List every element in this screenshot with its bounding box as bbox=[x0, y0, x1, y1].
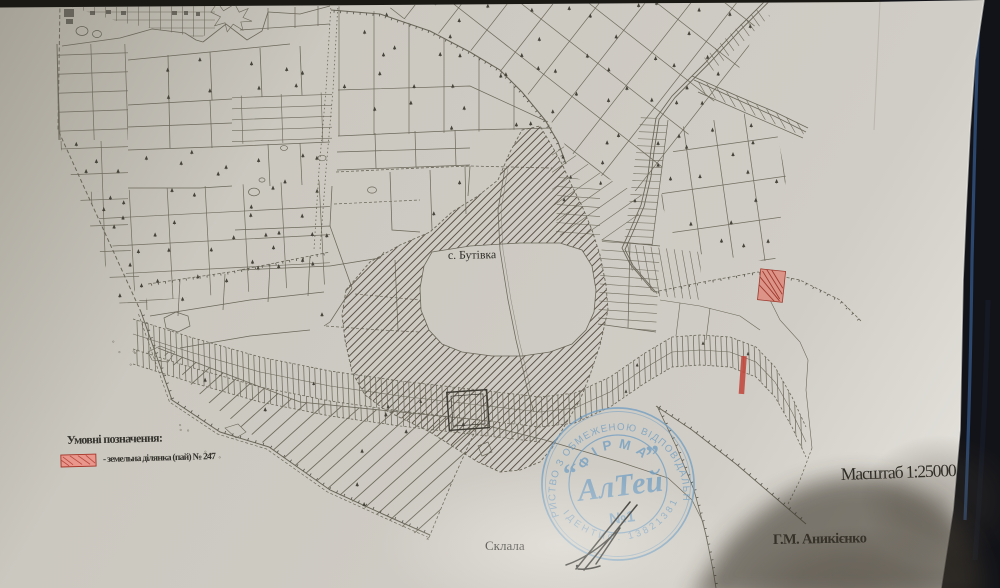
svg-text:с. Бутівка: с. Бутівка bbox=[448, 247, 497, 262]
svg-text:Умовні позначення:: Умовні позначення: bbox=[67, 430, 163, 447]
